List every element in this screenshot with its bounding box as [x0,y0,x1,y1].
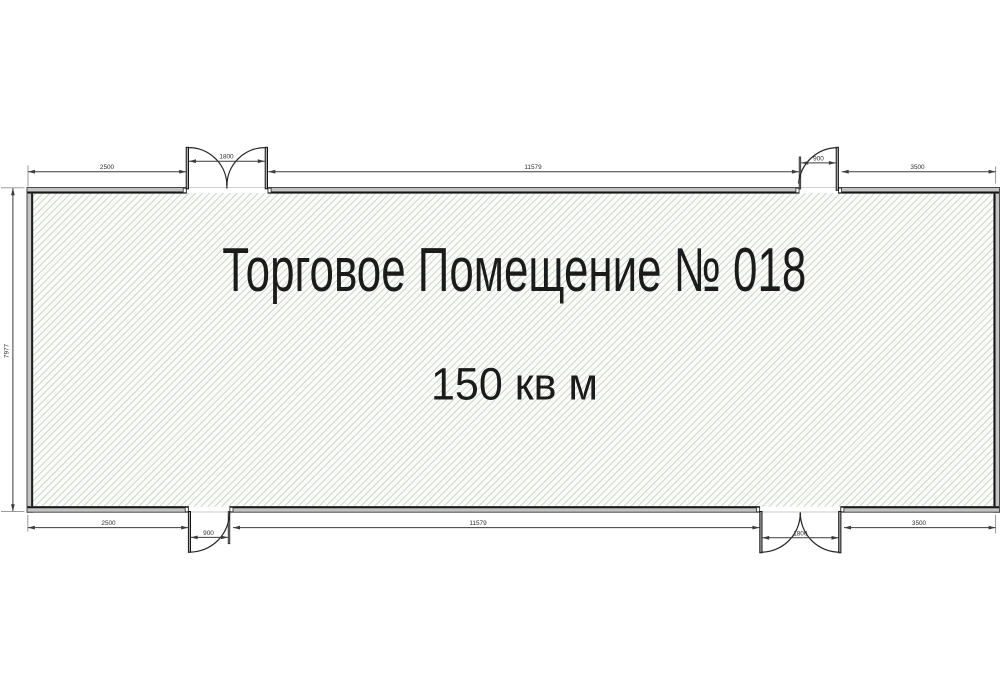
svg-text:900: 900 [203,530,214,537]
svg-text:150 кв м: 150 кв м [431,359,598,410]
svg-text:900: 900 [813,155,824,162]
svg-text:1800: 1800 [219,154,234,161]
svg-text:2500: 2500 [100,164,115,171]
svg-text:3500: 3500 [912,520,927,527]
svg-text:11579: 11579 [524,164,542,171]
svg-text:1800: 1800 [793,530,808,537]
svg-text:7977: 7977 [4,343,11,358]
svg-text:Торговое Помещение № 018: Торговое Помещение № 018 [222,236,806,305]
svg-text:2500: 2500 [101,520,116,527]
svg-text:3500: 3500 [910,164,925,171]
svg-text:11579: 11579 [469,520,487,527]
